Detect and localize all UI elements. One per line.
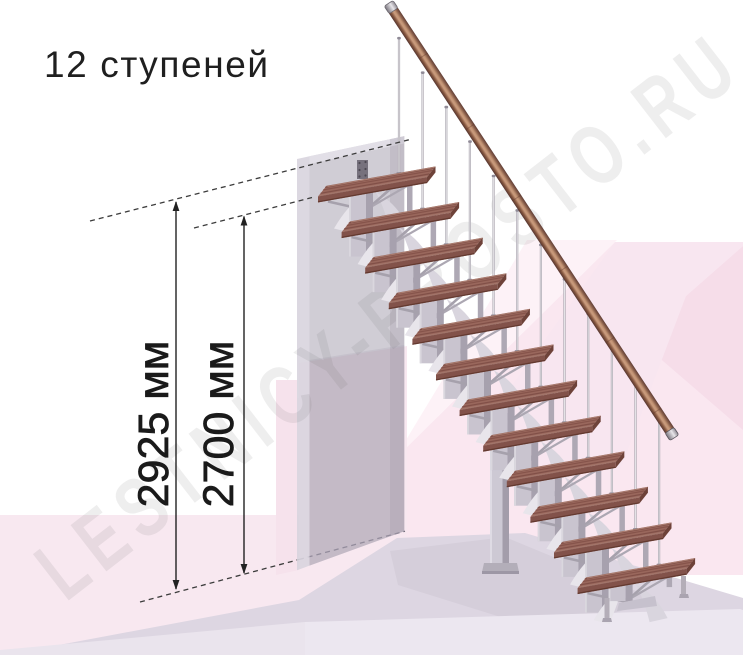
svg-text:12 ступеней: 12 ступеней [44,44,270,85]
svg-text:2700 мм: 2700 мм [195,341,243,508]
svg-text:2925 мм: 2925 мм [130,341,178,508]
